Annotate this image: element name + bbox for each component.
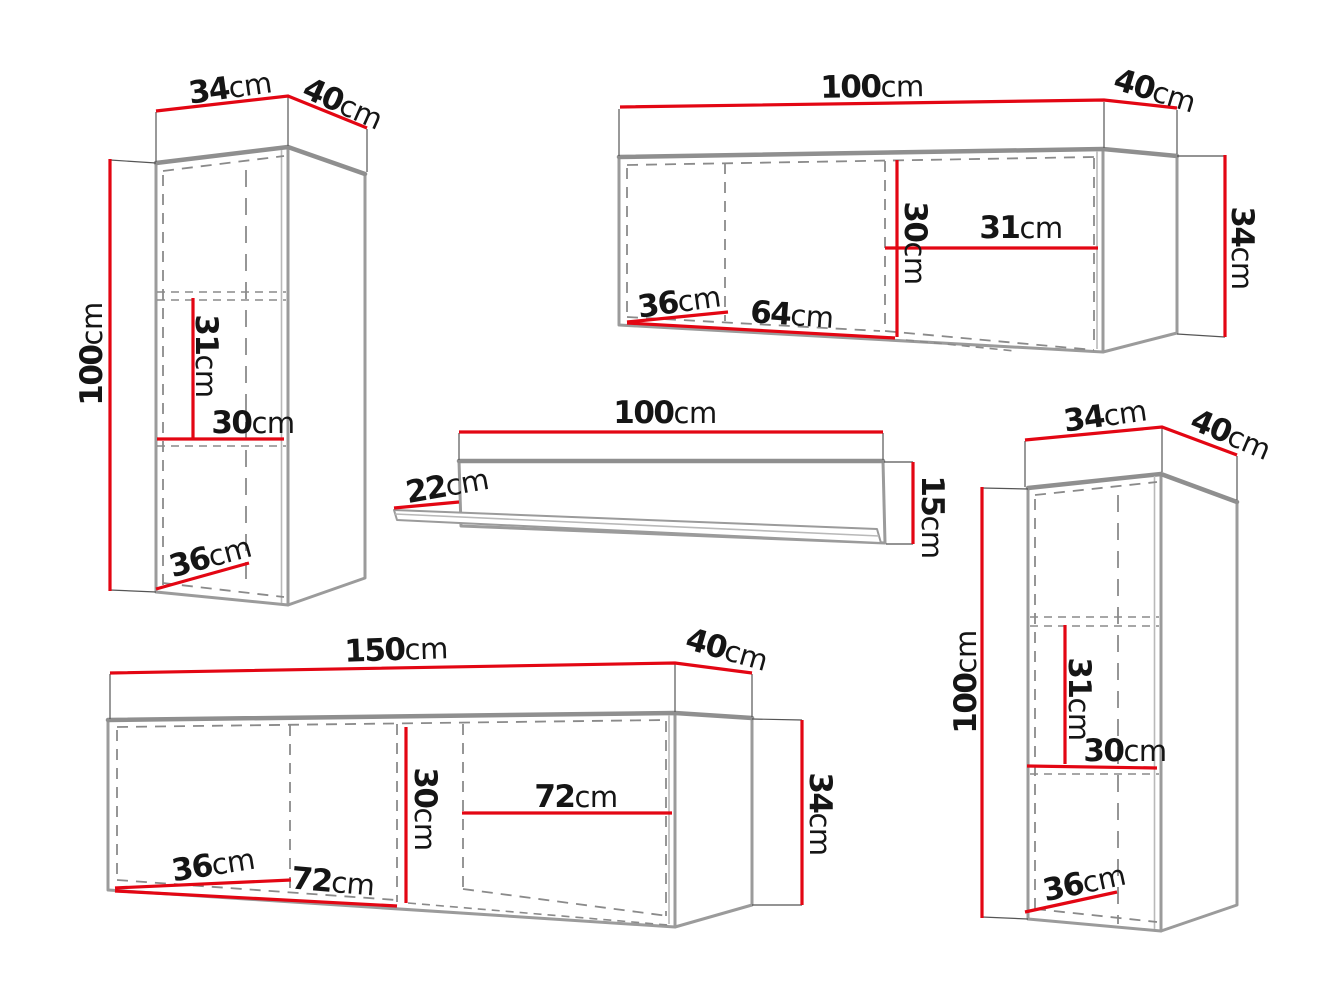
width-value: 100: [613, 395, 674, 431]
left-section-unit: cm: [330, 865, 376, 903]
width-value: 150: [344, 632, 406, 670]
left-section-label: 64cm: [749, 294, 835, 336]
depth-label: 40cm: [1185, 402, 1276, 468]
long-cabinet-bottom-left: 150cm 40cm 34cm 30cm 72cm 36cm 72cm: [108, 621, 838, 927]
interior-depth-unit: cm: [675, 279, 723, 319]
furniture-dimensions-sheet: 34cm 40cm 100cm 31cm 30cm 36cm 100cm 40c…: [0, 0, 1339, 1004]
height-value: 15: [914, 475, 950, 515]
height-unit: cm: [803, 812, 837, 855]
height-label: 34cm: [802, 772, 838, 855]
width-label: 150cm: [344, 630, 449, 670]
left-section-value: 72: [290, 860, 333, 899]
width-unit: cm: [674, 396, 717, 430]
height-unit: cm: [75, 302, 109, 345]
wall-shelf-middle: 100cm 22cm 15cm: [394, 395, 950, 559]
depth-label: 40cm: [297, 71, 388, 138]
tall-cabinet-right: 34cm 40cm 100cm 31cm 30cm 36cm: [948, 392, 1276, 931]
interior-width-unit: cm: [1123, 734, 1166, 768]
interior-depth-value: 36: [635, 284, 680, 325]
upper-section-label: 31cm: [188, 314, 224, 397]
width-value: 100: [820, 69, 882, 106]
width-label: 100cm: [820, 68, 924, 106]
right-section-label: 31cm: [979, 210, 1062, 246]
height-unit: cm: [949, 630, 983, 673]
cabinet-front-panel: [619, 149, 1103, 352]
right-section-value: 72: [534, 779, 574, 815]
height-unit: cm: [915, 515, 949, 558]
interior-height-label: 30cm: [897, 201, 933, 284]
depth-value: 22: [403, 469, 449, 511]
height-label: 100cm: [948, 630, 984, 733]
extension-line: [752, 719, 802, 720]
interior-height-unit: cm: [408, 807, 442, 850]
upper-section-unit: cm: [189, 354, 223, 397]
horizontal-cabinet-top-right: 100cm 40cm 34cm 30cm 31cm 36cm 64cm: [619, 62, 1260, 352]
left-section-label: 72cm: [290, 860, 376, 903]
cabinet-side-panel: [1161, 474, 1237, 931]
extension-line: [110, 160, 156, 163]
height-label: 34cm: [1224, 206, 1260, 289]
right-section-unit: cm: [1019, 211, 1062, 245]
extension-line: [1177, 334, 1225, 337]
interior-width-value: 30: [1083, 733, 1124, 769]
tall-cabinet-top-left: 34cm 40cm 100cm 31cm 30cm 36cm: [74, 64, 388, 605]
width-unit: cm: [226, 65, 274, 105]
interior-height-unit: cm: [898, 241, 932, 284]
interior-width-label: 30cm: [211, 405, 294, 441]
upper-section-value: 31: [188, 314, 224, 354]
height-value: 34: [1224, 206, 1260, 247]
interior-height-value: 30: [897, 201, 933, 242]
width-unit: cm: [1101, 393, 1149, 433]
width-label: 34cm: [1061, 392, 1149, 439]
extension-line: [982, 917, 1028, 919]
cabinet-side-panel: [1103, 149, 1177, 352]
extension-line: [110, 590, 156, 592]
interior-depth-value: 36: [169, 847, 214, 889]
width-value: 34: [186, 70, 232, 111]
interior-width-label: 30cm: [1083, 733, 1166, 769]
width-label: 34cm: [186, 64, 274, 111]
depth-unit: cm: [1148, 74, 1199, 119]
right-section-label: 72cm: [534, 779, 617, 815]
height-value: 34: [802, 772, 838, 813]
interior-depth-unit: cm: [209, 842, 257, 882]
height-unit: cm: [1225, 246, 1259, 289]
dimensions-diagram: 34cm 40cm 100cm 31cm 30cm 36cm 100cm 40c…: [0, 0, 1339, 1004]
depth-label: 40cm: [1110, 62, 1200, 121]
interior-height-value: 30: [407, 767, 443, 808]
left-section-unit: cm: [789, 298, 834, 335]
width-unit: cm: [404, 631, 448, 666]
right-section-unit: cm: [574, 780, 617, 814]
upper-section-label: 31cm: [1061, 657, 1097, 740]
height-label: 100cm: [74, 302, 110, 405]
interior-height-label: 30cm: [407, 767, 443, 850]
extension-line: [982, 488, 1028, 489]
height-label: 15cm: [914, 475, 950, 558]
height-value: 100: [948, 673, 984, 734]
right-section-value: 31: [979, 210, 1019, 246]
width-value: 34: [1061, 398, 1107, 439]
cabinet-side-panel: [288, 147, 365, 605]
width-label: 100cm: [613, 395, 716, 431]
left-section-value: 64: [749, 294, 792, 333]
cabinet-side-panel: [675, 713, 752, 927]
interior-width-value: 30: [211, 405, 252, 441]
interior-width-unit: cm: [251, 406, 294, 440]
upper-section-value: 31: [1061, 657, 1097, 697]
height-value: 100: [74, 345, 110, 406]
width-unit: cm: [880, 69, 924, 104]
